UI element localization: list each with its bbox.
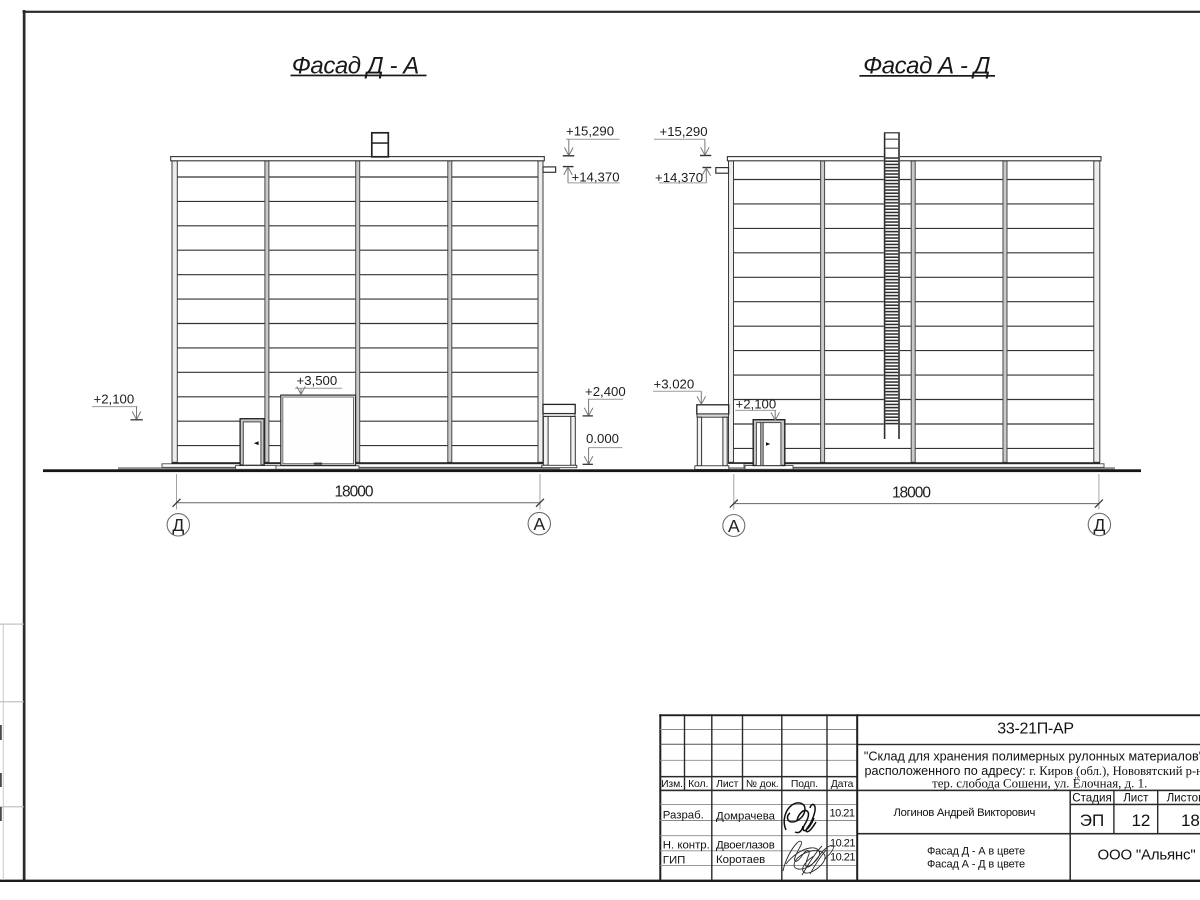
svg-text:Фасад Д - А в цвете: Фасад Д - А в цвете	[927, 846, 1025, 858]
svg-text:Коротаев: Коротаев	[716, 854, 765, 866]
svg-text:18000: 18000	[892, 484, 931, 501]
svg-text:А: А	[728, 516, 740, 536]
svg-text:10.21: 10.21	[830, 852, 855, 864]
svg-text:Стадия: Стадия	[1072, 791, 1112, 804]
svg-text:Листов: Листов	[1167, 791, 1200, 804]
svg-text:+15,290: +15,290	[660, 124, 708, 139]
svg-text:тер. слобода Сошени, ул. Ёлочн: тер. слобода Сошени, ул. Ёлочная, д. 1.	[932, 776, 1147, 790]
svg-text:18000: 18000	[334, 484, 373, 501]
svg-text:Двоеглазов: Двоеглазов	[716, 840, 775, 852]
svg-text:Д: Д	[172, 515, 184, 535]
svg-text:Фасад А - Д в цвете: Фасад А - Д в цвете	[927, 858, 1025, 870]
svg-text:ЭП: ЭП	[1080, 811, 1104, 830]
svg-text:Кол.: Кол.	[688, 779, 708, 790]
svg-text:+2,100: +2,100	[94, 392, 135, 407]
svg-text:+15,290: +15,290	[566, 124, 614, 139]
svg-text:Домрачева: Домрачева	[716, 810, 776, 822]
svg-text:Лист: Лист	[716, 779, 739, 790]
svg-text:+3.020: +3.020	[654, 376, 695, 391]
svg-text:+3,500: +3,500	[297, 373, 338, 388]
svg-text:№ док.: № док.	[746, 779, 779, 790]
svg-text:Изм.: Изм.	[661, 779, 683, 790]
svg-text:18: 18	[1181, 811, 1200, 830]
svg-text:Лист: Лист	[1123, 791, 1149, 804]
svg-text:0.000: 0.000	[586, 431, 619, 446]
svg-text:Подп.: Подп.	[791, 779, 818, 790]
svg-text:+14,370: +14,370	[572, 169, 620, 184]
svg-text:+2,100: +2,100	[736, 397, 777, 412]
svg-text:+2,400: +2,400	[585, 384, 626, 399]
svg-text:Дата: Дата	[831, 779, 854, 790]
svg-text:Д: Д	[1093, 515, 1105, 535]
svg-text:10.21: 10.21	[829, 807, 854, 819]
svg-text:Н. контр.: Н. контр.	[663, 840, 710, 852]
svg-text:Разраб.: Разраб.	[663, 809, 704, 821]
svg-text:Логинов Андрей Викторович: Логинов Андрей Викторович	[894, 807, 1036, 819]
svg-text:12: 12	[1131, 811, 1150, 830]
svg-text:ГИП: ГИП	[663, 855, 686, 867]
svg-text:33-21П-АР: 33-21П-АР	[997, 720, 1073, 737]
svg-text:А: А	[533, 514, 545, 534]
svg-text:ООО "Альянс": ООО "Альянс"	[1098, 847, 1196, 864]
svg-text:"Склад для хранения полимерных: "Склад для хранения полимерных рулонных …	[864, 750, 1200, 764]
